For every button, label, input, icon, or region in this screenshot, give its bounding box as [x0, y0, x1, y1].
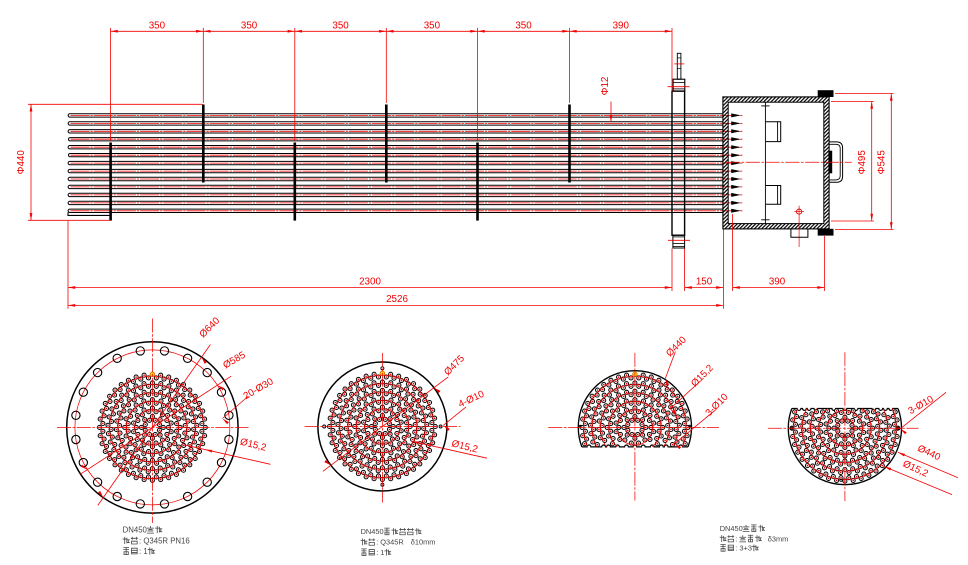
svg-text:: 1: : 1: [376, 548, 384, 557]
svg-text:Φ12: Φ12: [600, 77, 611, 96]
svg-text:350: 350: [424, 21, 441, 32]
svg-text:350: 350: [332, 21, 349, 32]
svg-text:2300: 2300: [359, 276, 381, 287]
svg-text:: Q345R PN16: : Q345R PN16: [139, 536, 190, 545]
svg-text:DN450: DN450: [123, 525, 148, 534]
svg-text::: :: [735, 534, 737, 543]
svg-text:δ10mm: δ10mm: [411, 538, 436, 547]
svg-text:350: 350: [515, 21, 532, 32]
svg-text:Φ545: Φ545: [877, 150, 888, 175]
svg-text:390: 390: [613, 21, 630, 32]
svg-text:Φ495: Φ495: [857, 150, 868, 175]
svg-text:390: 390: [769, 276, 786, 287]
svg-text:2526: 2526: [386, 294, 408, 305]
svg-text:: 3+3: : 3+3: [735, 544, 752, 553]
svg-text:DN450: DN450: [361, 527, 384, 536]
svg-text:: Q345R: : Q345R: [376, 538, 404, 547]
svg-text:150: 150: [696, 276, 713, 287]
svg-text:DN450: DN450: [720, 524, 743, 533]
svg-text:: 1: : 1: [139, 547, 148, 556]
svg-text:δ3mm: δ3mm: [768, 534, 789, 543]
svg-text:350: 350: [149, 21, 166, 32]
svg-text:Φ440: Φ440: [16, 150, 27, 175]
svg-text:350: 350: [241, 21, 258, 32]
